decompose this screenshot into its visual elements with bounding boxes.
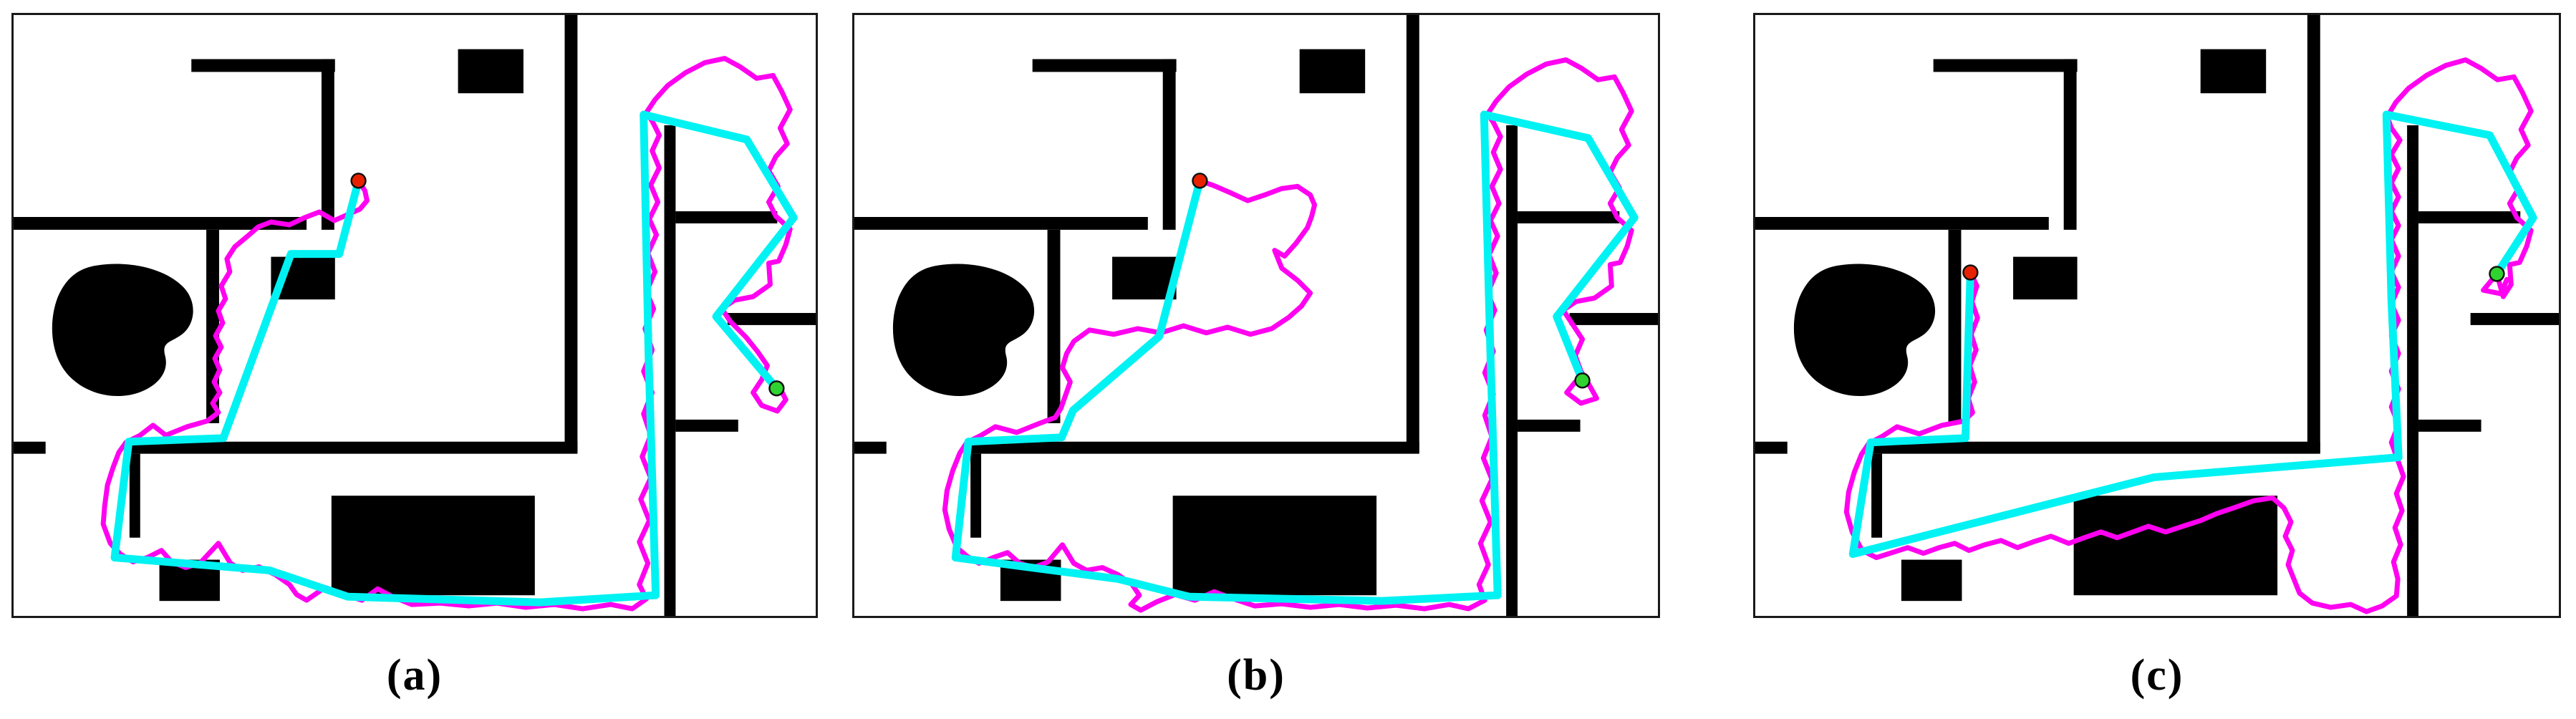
- wall-corridor-wall: [130, 442, 578, 454]
- wall-room-top-wall: [1934, 59, 2078, 72]
- start-marker-c: [1963, 266, 1977, 280]
- wall-room-right-wall: [322, 59, 334, 230]
- wall-start-area-rect: [2013, 257, 2078, 300]
- wall-big-bottom-rect: [2074, 496, 2277, 595]
- wall-big-bottom-rect: [1173, 496, 1376, 595]
- wall-center-vertical-wall: [565, 15, 578, 453]
- map-panel-c: [1753, 13, 2561, 618]
- wall-room-right-wall: [1163, 59, 1176, 230]
- map-canvas-a: [14, 15, 816, 616]
- wall-right-branch-upper: [2418, 211, 2520, 223]
- wall-small-bottom-rect: [1901, 560, 1962, 602]
- subfigure-caption-c: (c): [2014, 650, 2300, 701]
- wall-right-branch-lower: [2418, 420, 2481, 432]
- wall-corridor-wall: [970, 442, 1419, 454]
- wall-right-branch-upper: [1518, 211, 1619, 223]
- map-canvas-c: [1755, 15, 2559, 616]
- wall-left-border-stub: [14, 442, 46, 454]
- start-marker-a: [352, 173, 366, 188]
- wall-left-vertical-wall: [130, 454, 140, 538]
- wall-center-vertical-wall: [2307, 15, 2320, 453]
- wall-left-border-stub: [1755, 442, 1788, 454]
- goal-marker-a: [769, 381, 783, 395]
- map-panel-b: [852, 13, 1660, 618]
- wall-left-vertical-wall: [1871, 454, 1882, 538]
- wall-mid-left-vertical-wall: [1949, 230, 1962, 423]
- wall-mid-left-vertical-wall: [1048, 230, 1061, 423]
- goal-marker-c: [2490, 266, 2504, 281]
- goal-marker-b: [1576, 373, 1590, 387]
- wall-right-branch-lower: [1518, 420, 1581, 432]
- wall-left-border-stub: [854, 442, 887, 454]
- wall-left-vertical-wall: [970, 454, 981, 538]
- wall-room-top-wall: [191, 59, 335, 72]
- obstacle-blob: [52, 264, 193, 396]
- wall-right-border-wall: [1570, 313, 1658, 325]
- subfigure-caption-a: (a): [271, 650, 558, 701]
- wall-top-center-rect: [2201, 49, 2267, 94]
- wall-right-vertical-wall: [665, 125, 676, 616]
- obstacle-blob: [1794, 264, 1935, 396]
- subfigure-caption-b: (b): [1113, 650, 1399, 701]
- wall-center-vertical-wall: [1407, 15, 1419, 453]
- wall-right-branch-lower: [675, 420, 738, 432]
- wall-right-border-wall: [2471, 313, 2559, 325]
- wall-right-vertical-wall: [2407, 125, 2418, 616]
- map-panel-a: [11, 13, 818, 618]
- start-marker-b: [1192, 173, 1207, 188]
- wall-right-vertical-wall: [1506, 125, 1518, 616]
- wall-long-upper-wall: [1755, 217, 2049, 230]
- wall-right-border-wall: [728, 313, 816, 325]
- wall-corridor-wall: [1871, 442, 2320, 454]
- wall-room-top-wall: [1033, 59, 1177, 72]
- wall-room-right-wall: [2064, 59, 2077, 230]
- wall-big-bottom-rect: [332, 496, 535, 595]
- wall-long-upper-wall: [854, 217, 1148, 230]
- wall-right-branch-upper: [675, 211, 777, 223]
- obstacle-blob: [893, 264, 1034, 396]
- wall-top-center-rect: [458, 49, 524, 94]
- map-canvas-b: [854, 15, 1658, 616]
- wall-top-center-rect: [1300, 49, 1366, 94]
